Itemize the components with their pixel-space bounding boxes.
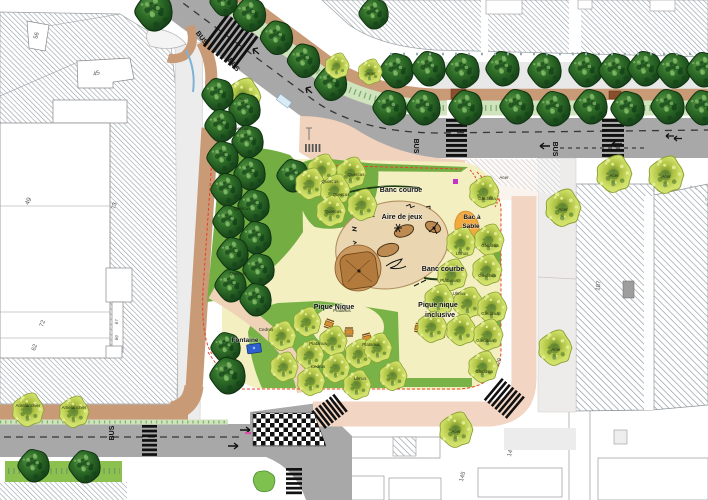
svg-text:Quercus: Quercus — [233, 206, 251, 211]
svg-text:Acer: Acer — [366, 71, 376, 76]
svg-text:Gleditsia: Gleditsia — [476, 338, 494, 343]
svg-text:Cedrus: Cedrus — [259, 327, 274, 332]
svg-text:Aire de jeux: Aire de jeux — [382, 212, 423, 221]
svg-text:Cedrus: Cedrus — [311, 364, 326, 369]
svg-text:Acer: Acer — [609, 173, 619, 178]
svg-text:Quercus: Quercus — [231, 126, 249, 131]
svg-text:Pique nique: Pique nique — [418, 302, 458, 309]
svg-text:Sable: Sable — [462, 223, 480, 230]
svg-text:Ulmus: Ulmus — [456, 251, 470, 256]
svg-text:Acer: Acer — [558, 207, 568, 212]
svg-text:Platanus: Platanus — [440, 278, 458, 283]
svg-text:Quercus: Quercus — [332, 192, 350, 197]
svg-text:Bac à: Bac à — [463, 214, 481, 221]
svg-text:Fontaine: Fontaine — [231, 337, 258, 344]
svg-text:Banc courbe: Banc courbe — [380, 187, 423, 194]
svg-text:Ulmus: Ulmus — [354, 376, 368, 381]
svg-text:Gleditsia: Gleditsia — [475, 369, 493, 374]
svg-text:Quercus: Quercus — [347, 172, 365, 177]
svg-text:Gleditsia: Gleditsia — [481, 311, 499, 316]
svg-text:Banc courbe: Banc courbe — [422, 266, 465, 273]
svg-text:Acer: Acer — [238, 96, 248, 101]
svg-text:Acer: Acer — [451, 429, 461, 434]
svg-text:Platanus: Platanus — [333, 308, 351, 313]
svg-text:Gleditsia: Gleditsia — [481, 243, 499, 248]
svg-text:Amelanchier: Amelanchier — [61, 405, 87, 410]
svg-text:BUS: BUS — [412, 139, 419, 154]
svg-text:Acer: Acer — [499, 175, 509, 180]
svg-text:Gleditsia: Gleditsia — [478, 196, 496, 201]
svg-text:Quercus: Quercus — [321, 179, 339, 184]
svg-text:inclusive: inclusive — [425, 312, 455, 319]
svg-text:Ulmus: Ulmus — [453, 291, 467, 296]
svg-text:Platanus: Platanus — [362, 342, 380, 347]
svg-text:Amelanchier: Amelanchier — [15, 403, 41, 408]
svg-text:Acer: Acer — [551, 347, 561, 352]
svg-text:Quercus: Quercus — [324, 209, 342, 214]
svg-text:Gleditsia: Gleditsia — [478, 273, 496, 278]
svg-text:BUS: BUS — [109, 425, 116, 440]
svg-text:Quercus: Quercus — [229, 271, 247, 276]
svg-text:Acer: Acer — [661, 174, 671, 179]
svg-text:Platanus: Platanus — [309, 341, 327, 346]
svg-text:BUS: BUS — [551, 142, 558, 157]
